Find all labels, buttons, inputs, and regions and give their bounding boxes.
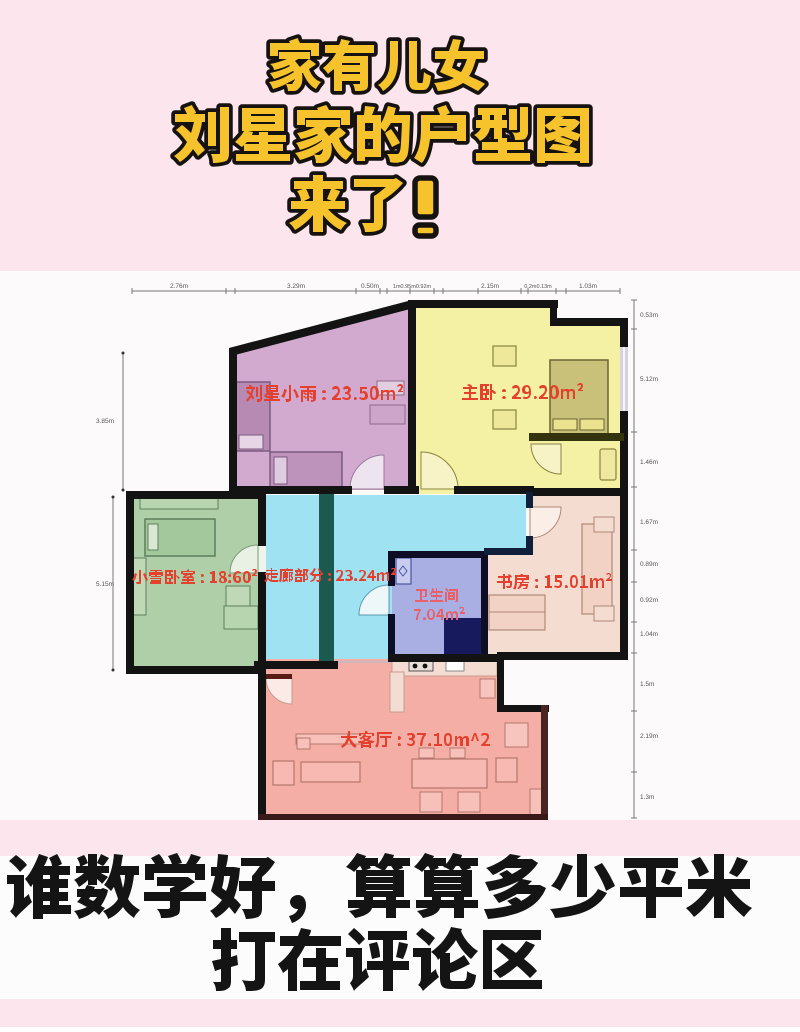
svg-text:1.3m: 1.3m [640,794,654,801]
svg-text:1.03m: 1.03m [579,283,597,290]
svg-text:1.04m: 1.04m [640,631,658,638]
svg-text:0.2m0.13m: 0.2m0.13m [524,284,552,290]
svg-text:3.85m: 3.85m [96,418,114,425]
svg-text:2.15m: 2.15m [481,283,499,290]
svg-text:1m0.95m0.92m: 1m0.95m0.92m [393,284,432,290]
svg-text:5.15m: 5.15m [96,581,114,588]
svg-text:0.50m: 0.50m [361,283,379,290]
svg-text:3.29m: 3.29m [287,283,305,290]
svg-text:2.76m: 2.76m [170,283,188,290]
svg-text:2.19m: 2.19m [640,733,658,740]
svg-text:0.92m: 0.92m [640,597,658,604]
svg-text:5.12m: 5.12m [640,376,658,383]
svg-text:1.5m: 1.5m [640,681,654,688]
svg-text:0.53m: 0.53m [640,312,658,319]
svg-text:1.46m: 1.46m [640,459,658,466]
svg-text:1.67m: 1.67m [640,519,658,526]
svg-text:0.89m: 0.89m [640,561,658,568]
